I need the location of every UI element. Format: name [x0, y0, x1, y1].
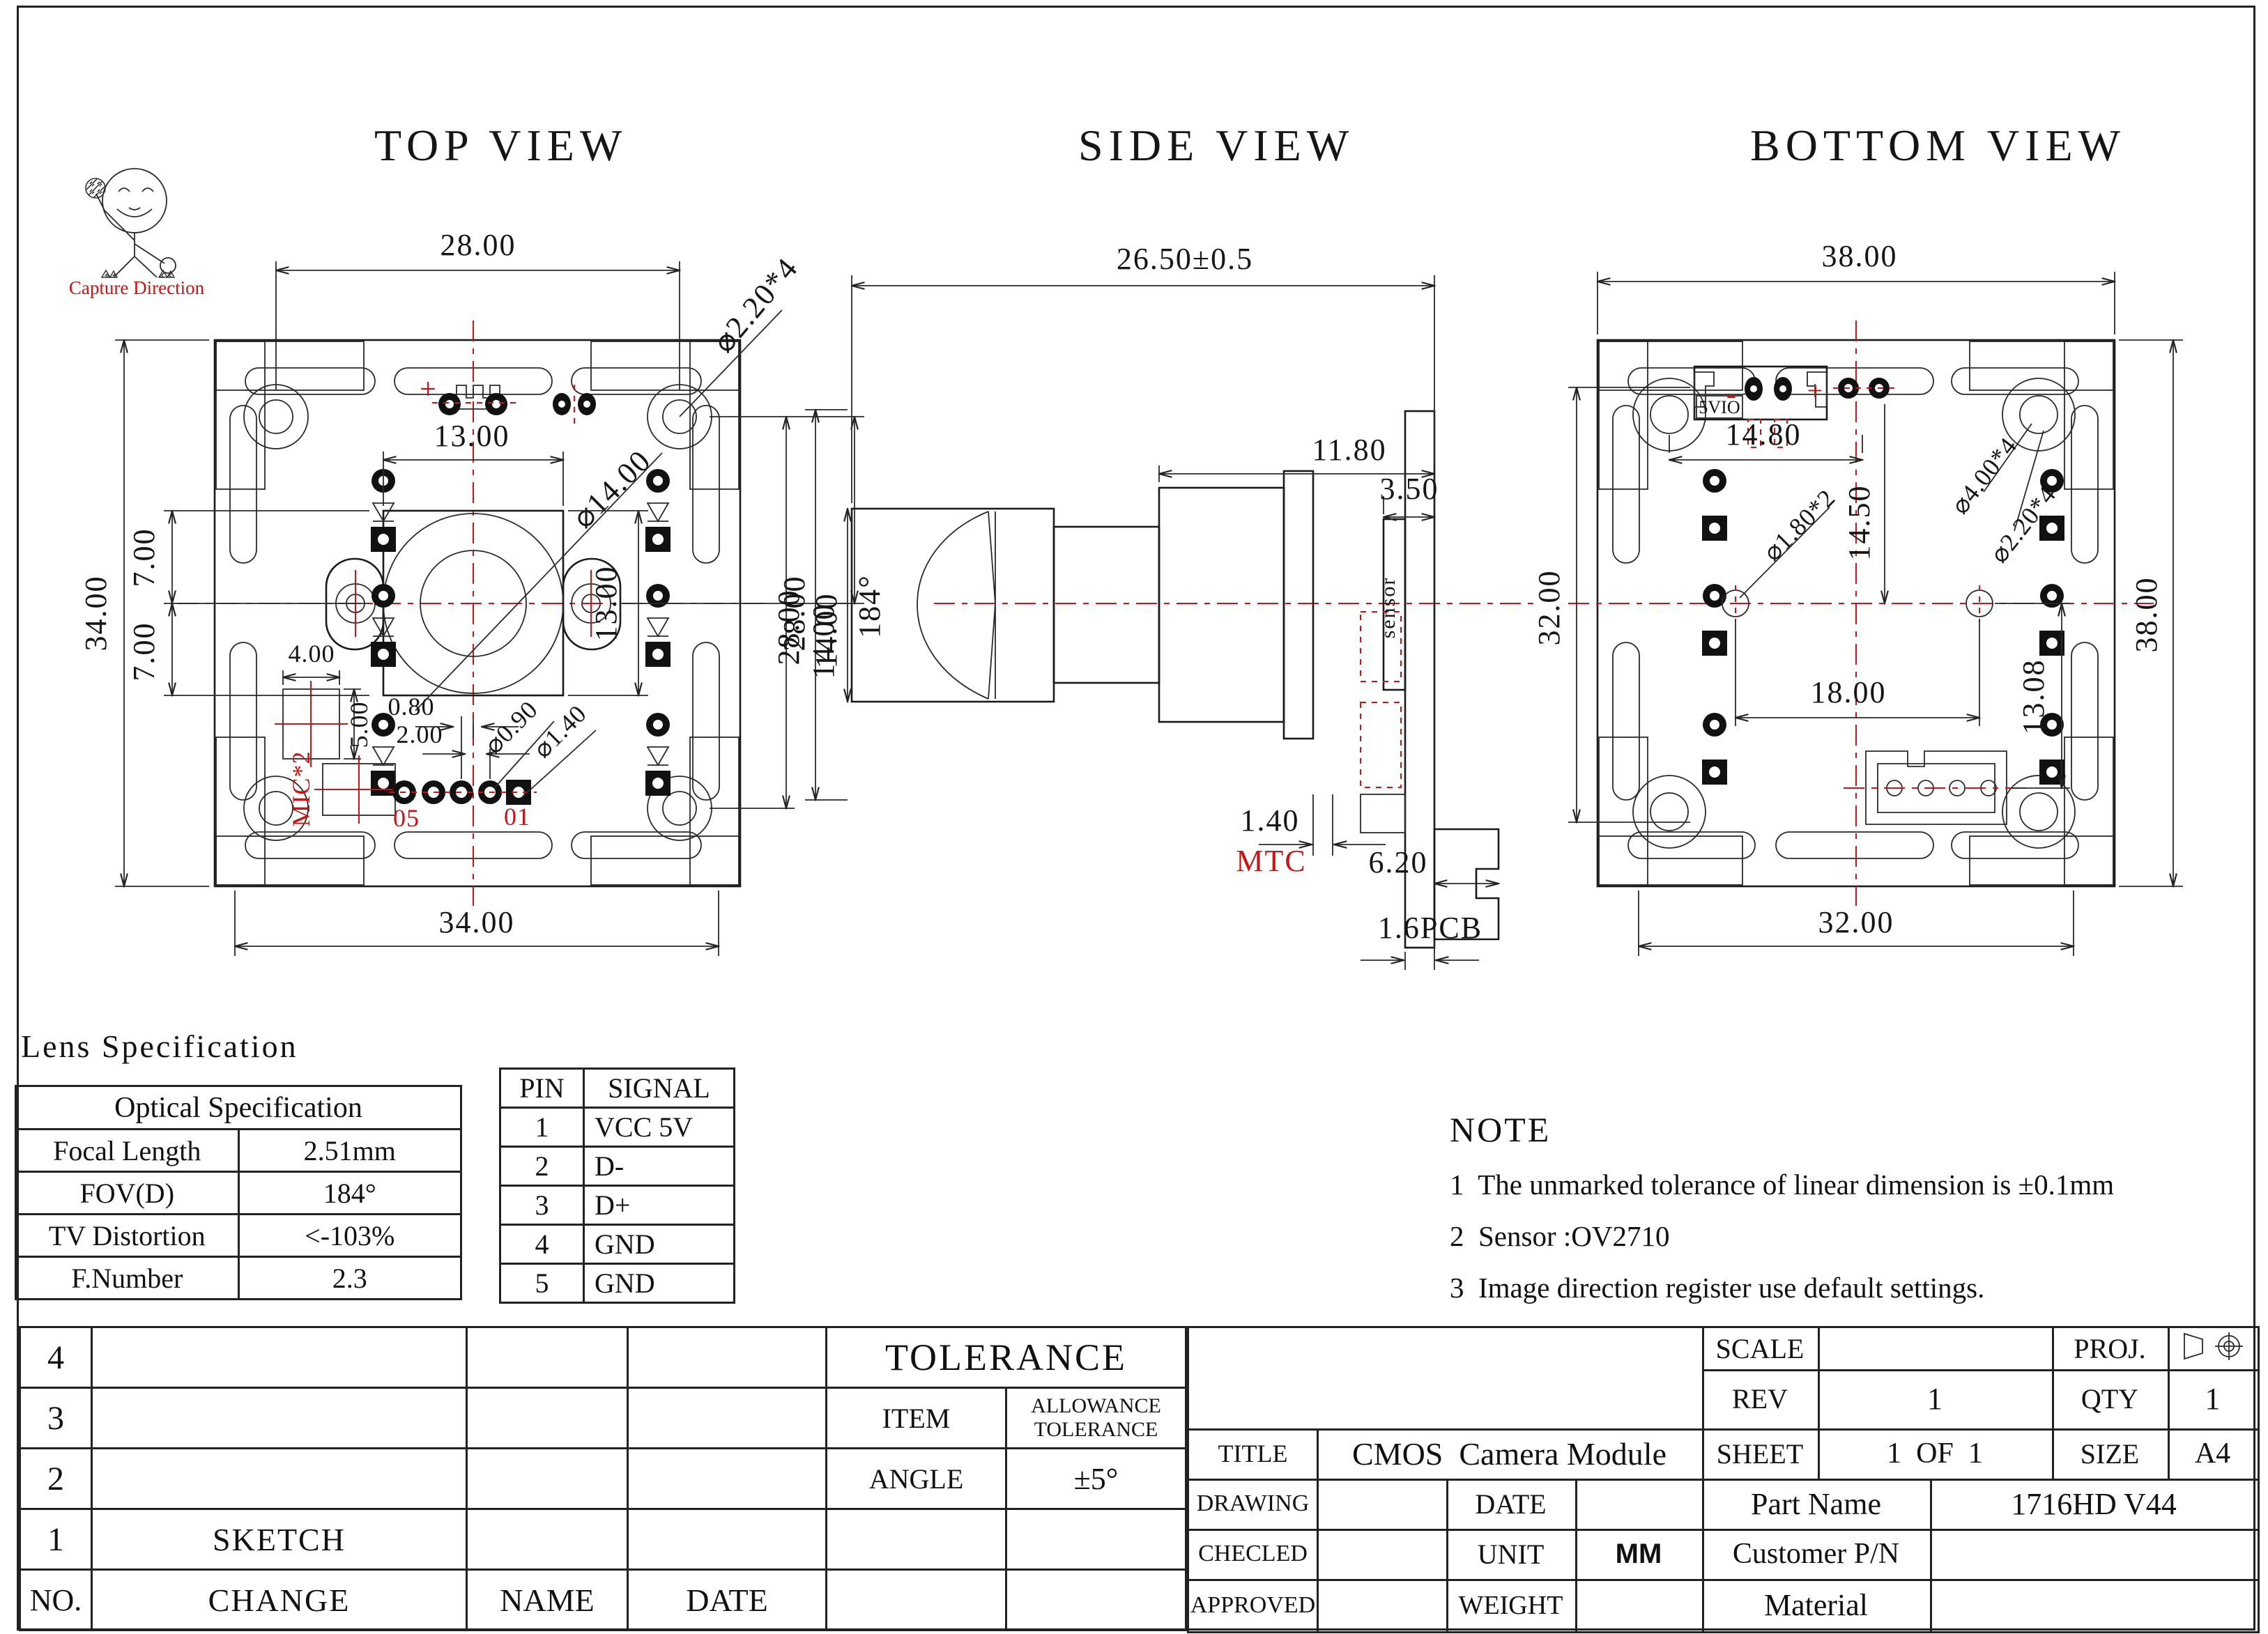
material-label: Material — [1702, 1579, 1930, 1631]
note-item-2: 2 Sensor :OV2710 — [1450, 1219, 1669, 1253]
note-item-3: 3 Image direction register use default s… — [1450, 1271, 1984, 1304]
qty-value: 1 — [2168, 1369, 2258, 1428]
part-name-label: Part Name — [1702, 1479, 1930, 1529]
drawing-label: DRAWING — [1189, 1479, 1317, 1529]
rev-row-num: 3 — [20, 1388, 92, 1449]
spec-value: 2.3 — [238, 1257, 461, 1300]
title-label: TITLE — [1189, 1428, 1317, 1479]
pin-num: 4 — [500, 1225, 584, 1264]
weight-label: WEIGHT — [1446, 1579, 1575, 1631]
spec-value: 2.51mm — [238, 1130, 461, 1172]
optical-spec-table: Optical Specification Focal Length 2.51m… — [15, 1085, 462, 1300]
sheet-label: SHEET — [1702, 1428, 1818, 1479]
unit-value: MM — [1575, 1529, 1702, 1579]
checked-label: CHECLED — [1189, 1529, 1317, 1579]
signal-header: SIGNAL — [584, 1069, 735, 1108]
spec-label: TV Distortion — [16, 1215, 239, 1257]
drawing-sheet: Capture Direction TOP VIEW — [0, 0, 2268, 1634]
qty-label: QTY — [2052, 1369, 2168, 1428]
pin-num: 2 — [500, 1147, 584, 1186]
proj-label: PROJ. — [2052, 1328, 2168, 1369]
pin-signal: GND — [584, 1225, 735, 1264]
pin-signal: VCC 5V — [584, 1108, 735, 1147]
rev-label: REV — [1702, 1369, 1818, 1428]
spec-label: FOV(D) — [16, 1172, 239, 1215]
change-label: CHANGE — [92, 1570, 467, 1631]
rev-row-num: 1 — [20, 1509, 92, 1570]
part-name-value: 1716HD V44 — [1930, 1479, 2258, 1529]
approved-label: APPROVED — [1189, 1579, 1317, 1631]
pin-num: 5 — [500, 1264, 584, 1303]
pin-signal-table: PIN SIGNAL 1 VCC 5V 2 D- 3 D+ 4 GND 5 GN… — [499, 1068, 735, 1304]
scale-label: SCALE — [1702, 1328, 1818, 1369]
tb-date-label: DATE — [1446, 1479, 1575, 1529]
note-item-1: 1 The unmarked tolerance of linear dimen… — [1450, 1168, 2114, 1201]
angle-label: ANGLE — [827, 1449, 1006, 1509]
title-value: CMOS Camera Module — [1317, 1428, 1702, 1479]
no-label: NO. — [20, 1570, 92, 1631]
revision-table: 4 TOLERANCE 3 ITEM ALLOWANCE TOLERANCE 2… — [19, 1326, 1187, 1631]
allowance-label2: TOLERANCE — [1008, 1418, 1184, 1442]
optical-spec-title: Optical Specification — [16, 1086, 461, 1130]
sheet-value: 1 OF 1 — [1818, 1428, 2052, 1479]
lens-spec-heading: Lens Specification — [21, 1030, 355, 1062]
customer-pn-label: Customer P/N — [1702, 1529, 1930, 1579]
unit-label: UNIT — [1446, 1529, 1575, 1579]
pin-header: PIN — [500, 1069, 584, 1108]
pin-signal: GND — [584, 1264, 735, 1303]
spec-value: <-103% — [238, 1215, 461, 1257]
pin-signal: D- — [584, 1147, 735, 1186]
title-block: SCALE PROJ. REV 1 QTY 1 TITLE CMOS Camer… — [1187, 1326, 2260, 1633]
date-label: DATE — [628, 1570, 827, 1631]
pin-num: 1 — [500, 1108, 584, 1147]
name-label: NAME — [467, 1570, 628, 1631]
pin-num: 3 — [500, 1186, 584, 1225]
spec-label: Focal Length — [16, 1130, 239, 1172]
size-label: SIZE — [2052, 1428, 2168, 1479]
pin-signal: D+ — [584, 1186, 735, 1225]
angle-tolerance-value: ±5° — [1006, 1449, 1186, 1509]
item-label: ITEM — [827, 1388, 1006, 1449]
allowance-label: ALLOWANCE — [1008, 1394, 1184, 1419]
tolerance-title: TOLERANCE — [827, 1327, 1186, 1388]
size-value: A4 — [2168, 1428, 2258, 1479]
rev-value: 1 — [1818, 1369, 2052, 1428]
spec-label: F.Number — [16, 1257, 239, 1300]
rev-row-num: 2 — [20, 1449, 92, 1509]
sketch-label: SKETCH — [92, 1509, 467, 1570]
rev-row-num: 4 — [20, 1327, 92, 1388]
note-heading: NOTE — [1450, 1112, 1589, 1147]
spec-value: 184° — [238, 1172, 461, 1215]
